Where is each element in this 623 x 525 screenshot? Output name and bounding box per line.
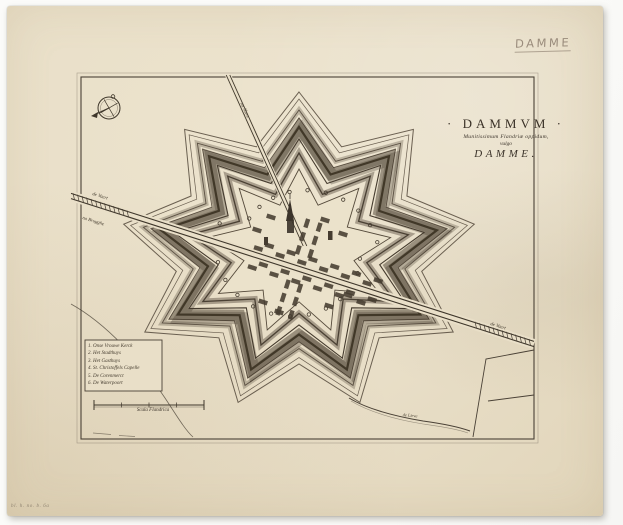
paper-sheet: · DAMMVM · Munitissimum Flandriæ oppidum…: [7, 6, 603, 516]
tree-icon: [236, 293, 239, 296]
legend-item: 1. Onse Vrouwe Kerck: [88, 343, 160, 350]
title-vulgo: vulgo: [421, 141, 591, 147]
scale-caption: Scala Flandrica: [123, 408, 183, 413]
handwritten-note: DAMME: [515, 35, 572, 52]
legend-item: 2. Het Stadthuys: [88, 350, 160, 357]
tree-icon: [224, 278, 227, 281]
legend-list: 1. Onse Vrouwe Kerck 2. Het Stadthuys 3.…: [88, 343, 160, 387]
legend-item: 6. De Waterpoort: [88, 380, 160, 387]
legend-item: 3. Het Gasthuys: [88, 358, 160, 365]
tree-icon: [216, 260, 219, 263]
legend-item: 4. St. Christoffels Capelle: [88, 365, 160, 372]
church-tower: [287, 221, 294, 233]
inventory-mark: bl. h. no. b. 6a: [11, 504, 50, 509]
tree-icon: [358, 257, 361, 260]
title-cartouche: · DAMMVM · Munitissimum Flandriæ oppidum…: [421, 116, 591, 160]
field-boundary-right-2: [488, 395, 534, 401]
title-subtitle: Munitissimum Flandriæ oppidum,: [421, 134, 591, 140]
field-boundary-right: [473, 350, 534, 437]
compass-rose-icon: [91, 95, 120, 119]
field-dash: [93, 433, 111, 435]
tree-icon: [307, 313, 310, 316]
legend-item: 5. De Corenmerct: [88, 373, 160, 380]
title-main: · DAMMVM ·: [421, 116, 591, 132]
title-vernacular-name: DAMME.: [421, 148, 591, 160]
small-tower: [328, 231, 333, 240]
field-dash: [119, 436, 135, 437]
small-tower: [264, 237, 268, 245]
fleur-de-lis-icon: [91, 112, 98, 118]
fortification-map-engraving: [7, 6, 603, 516]
